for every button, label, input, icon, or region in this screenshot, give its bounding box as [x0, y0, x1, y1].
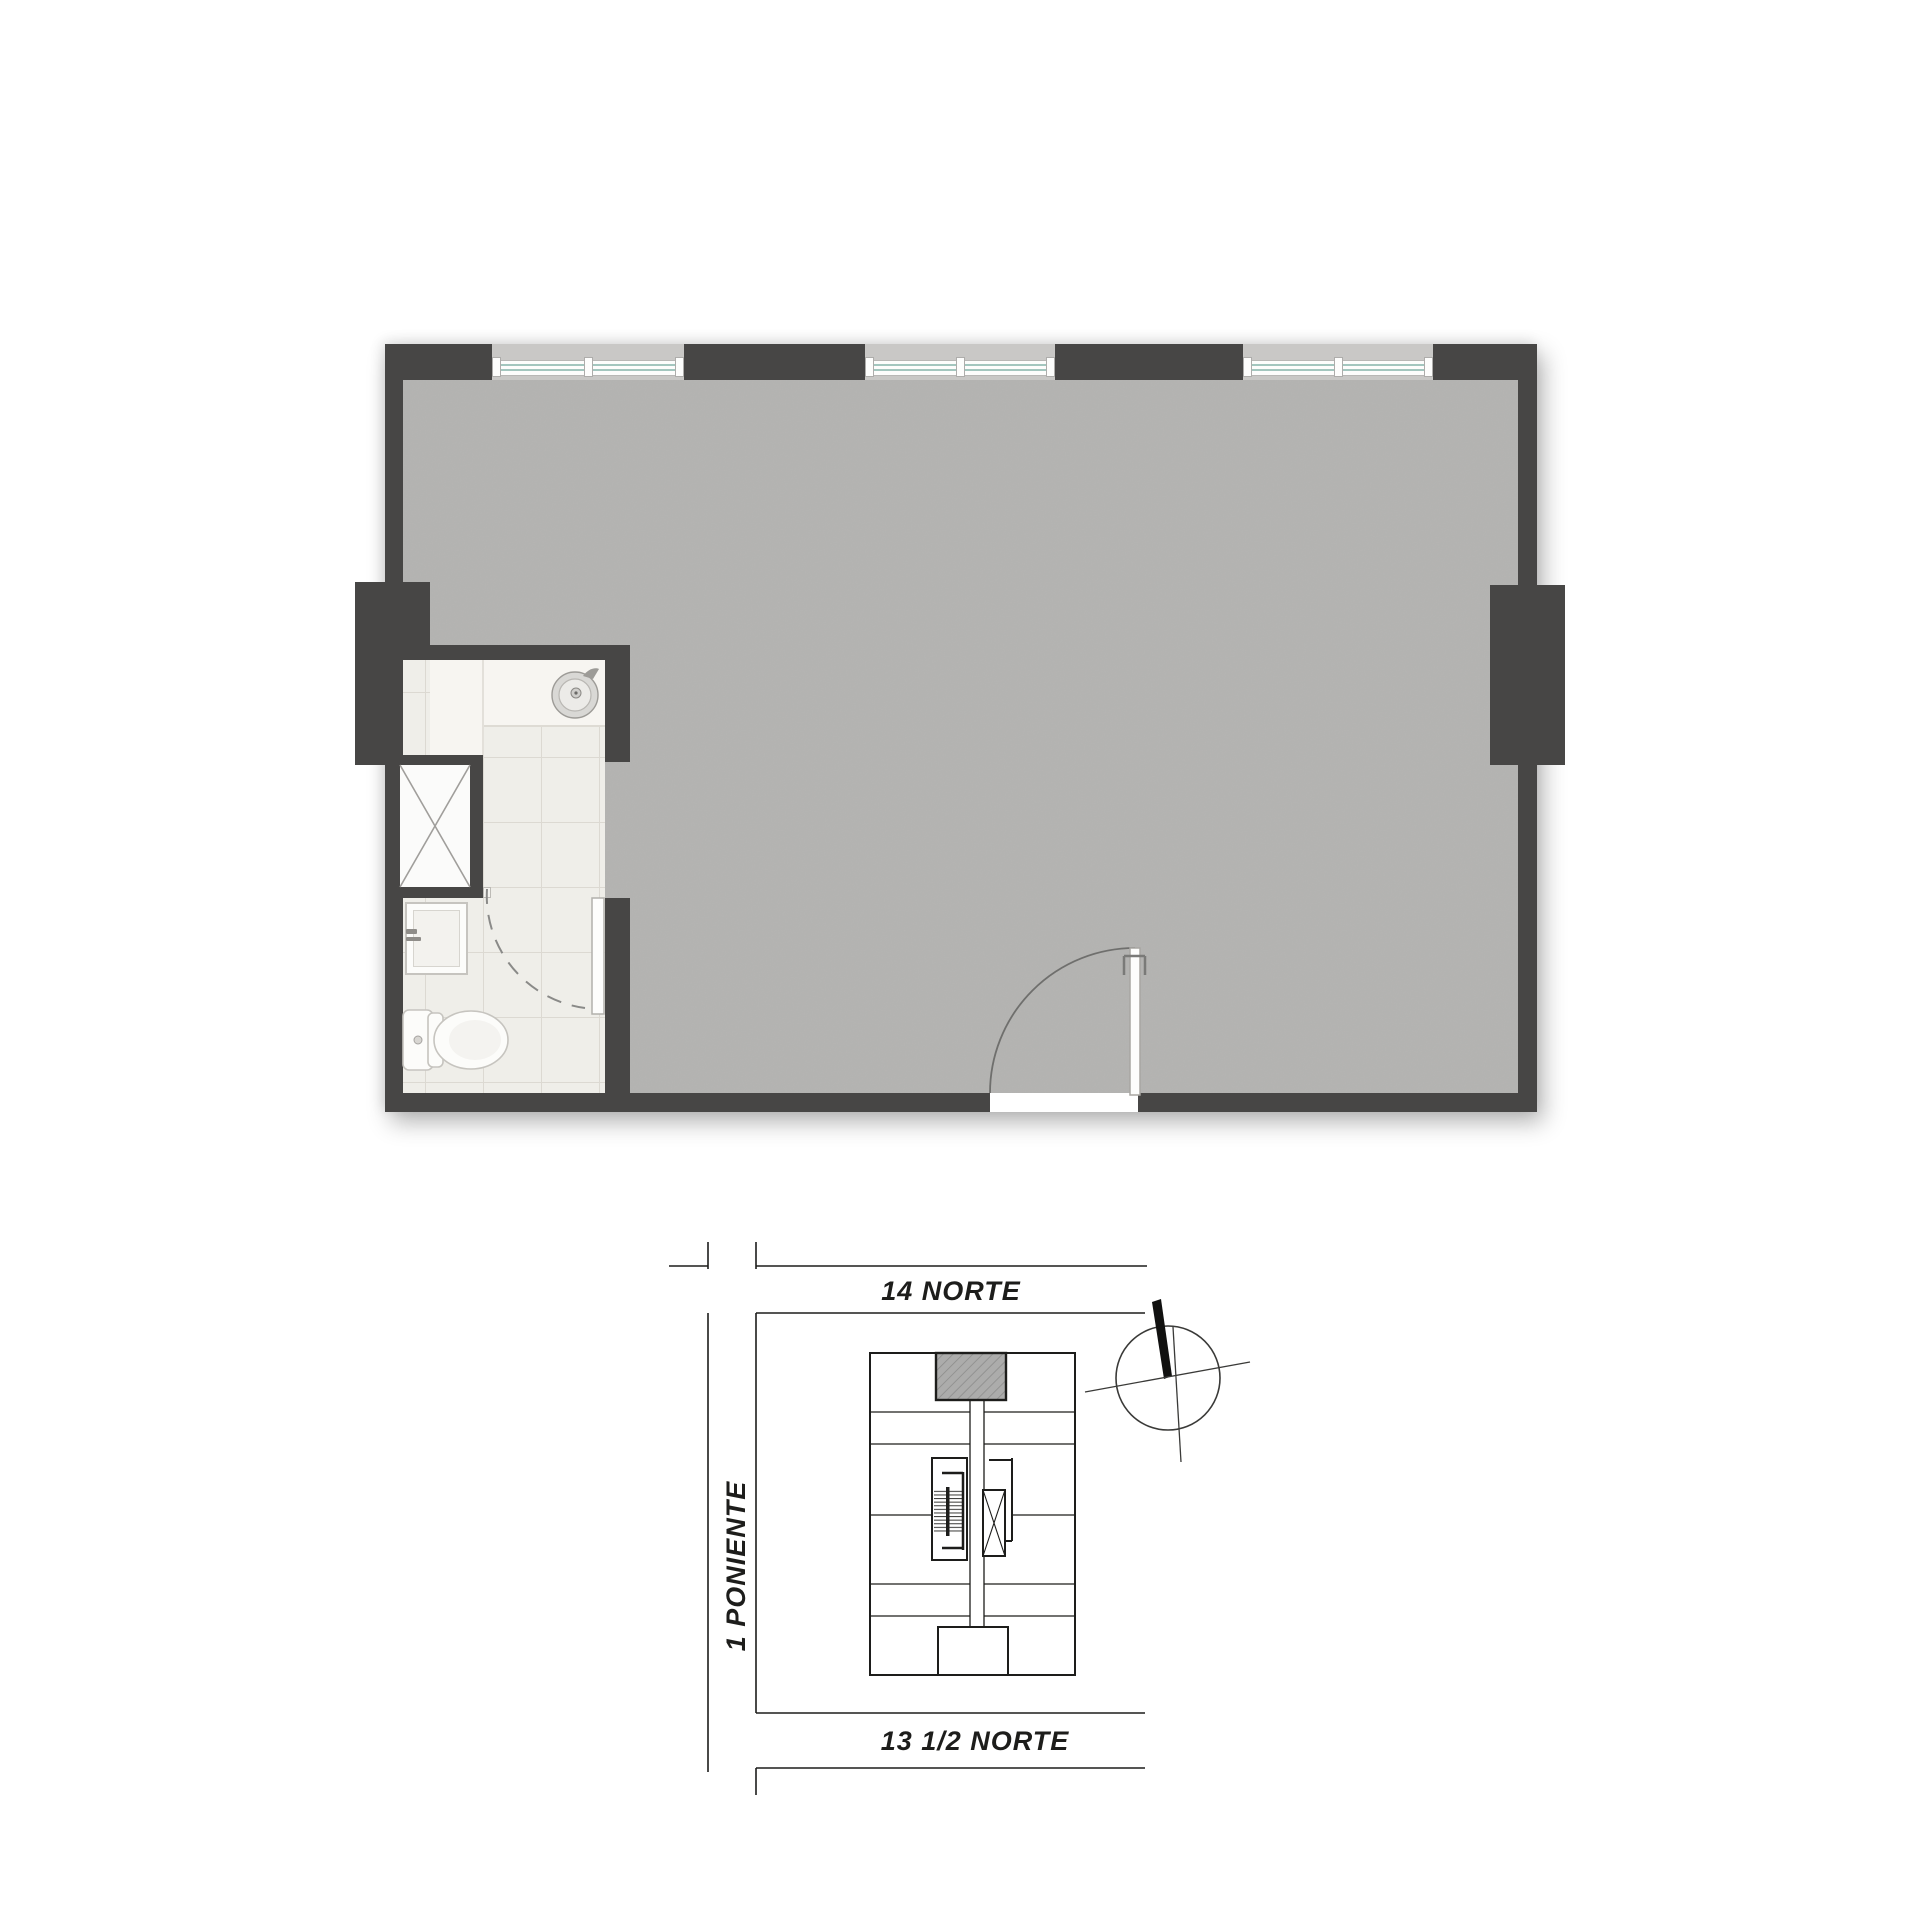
- shower-faucet-icon: [406, 929, 421, 941]
- street-label-1-poniente: 1 PONIENTE: [721, 1456, 751, 1676]
- round-sink: [552, 668, 599, 718]
- building-block: [870, 1353, 1075, 1675]
- bathroom-door-swing-arc: [487, 889, 585, 1008]
- bottom-unit: [938, 1627, 1008, 1675]
- north-arrow-icon: [1085, 1299, 1250, 1462]
- entry-door-swing-arc: [990, 948, 1135, 1093]
- unit-highlight: [936, 1353, 1006, 1400]
- plan-vector-overlay: [385, 344, 1537, 1112]
- toilet: [403, 1010, 508, 1070]
- duct-shaft-x-icon: [400, 765, 470, 887]
- street-label-14-norte: 14 NORTE: [851, 1276, 1051, 1307]
- stair-core: [932, 1458, 967, 1560]
- floor-plan: [385, 344, 1537, 1112]
- entry-door-leaf: [1130, 948, 1140, 1095]
- corridor-lines: [970, 1400, 984, 1627]
- unit-division-lines: [870, 1412, 1075, 1616]
- bathroom-door-leaf: [592, 898, 604, 1014]
- elevator-shaft: [983, 1458, 1012, 1556]
- street-label-13-12-norte: 13 1/2 NORTE: [855, 1726, 1095, 1757]
- drawing-canvas: 14 NORTE 1 PONIENTE 13 1/2 NORTE: [0, 0, 1920, 1920]
